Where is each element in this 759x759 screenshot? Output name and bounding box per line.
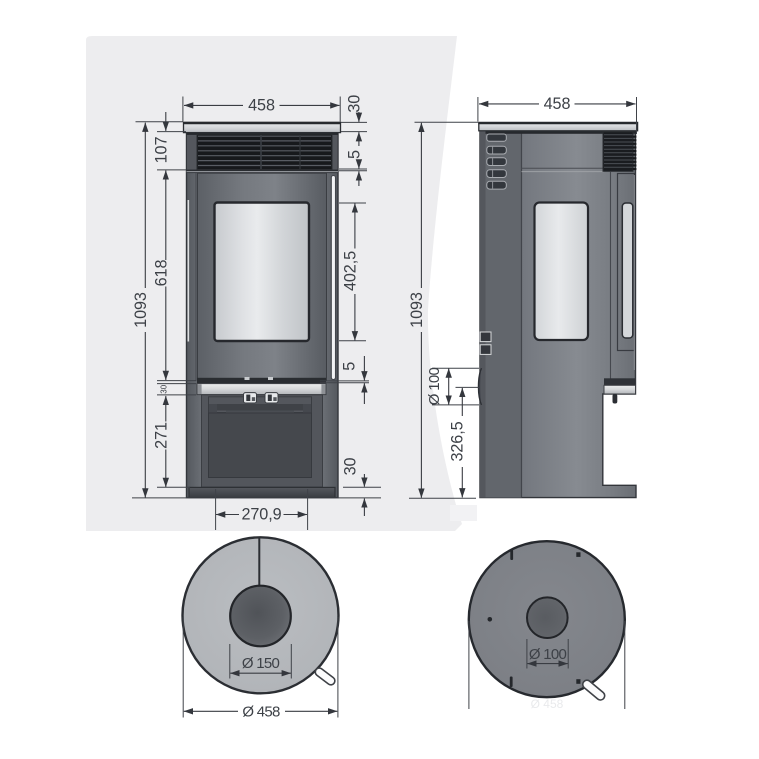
svg-text:Ø 100: Ø 100 [426, 367, 443, 405]
svg-text:Ø 100: Ø 100 [529, 646, 567, 663]
svg-text:30: 30 [159, 384, 168, 393]
svg-text:Ø 458: Ø 458 [531, 697, 564, 711]
svg-text:107: 107 [152, 137, 170, 164]
svg-text:5: 5 [341, 362, 359, 371]
svg-text:1093: 1093 [408, 292, 426, 328]
svg-text:Ø 150: Ø 150 [242, 655, 280, 672]
svg-text:271: 271 [152, 422, 170, 449]
svg-text:618: 618 [152, 260, 170, 287]
svg-text:326,5: 326,5 [449, 421, 467, 461]
svg-text:Ø 458: Ø 458 [242, 703, 280, 720]
svg-text:1093: 1093 [132, 292, 150, 328]
svg-text:402,5: 402,5 [341, 251, 359, 291]
svg-text:458: 458 [544, 95, 571, 113]
svg-text:270,9: 270,9 [241, 506, 281, 524]
svg-text:5: 5 [345, 150, 363, 159]
svg-text:458: 458 [248, 97, 275, 115]
svg-text:30: 30 [341, 458, 359, 476]
svg-text:30: 30 [345, 95, 363, 113]
